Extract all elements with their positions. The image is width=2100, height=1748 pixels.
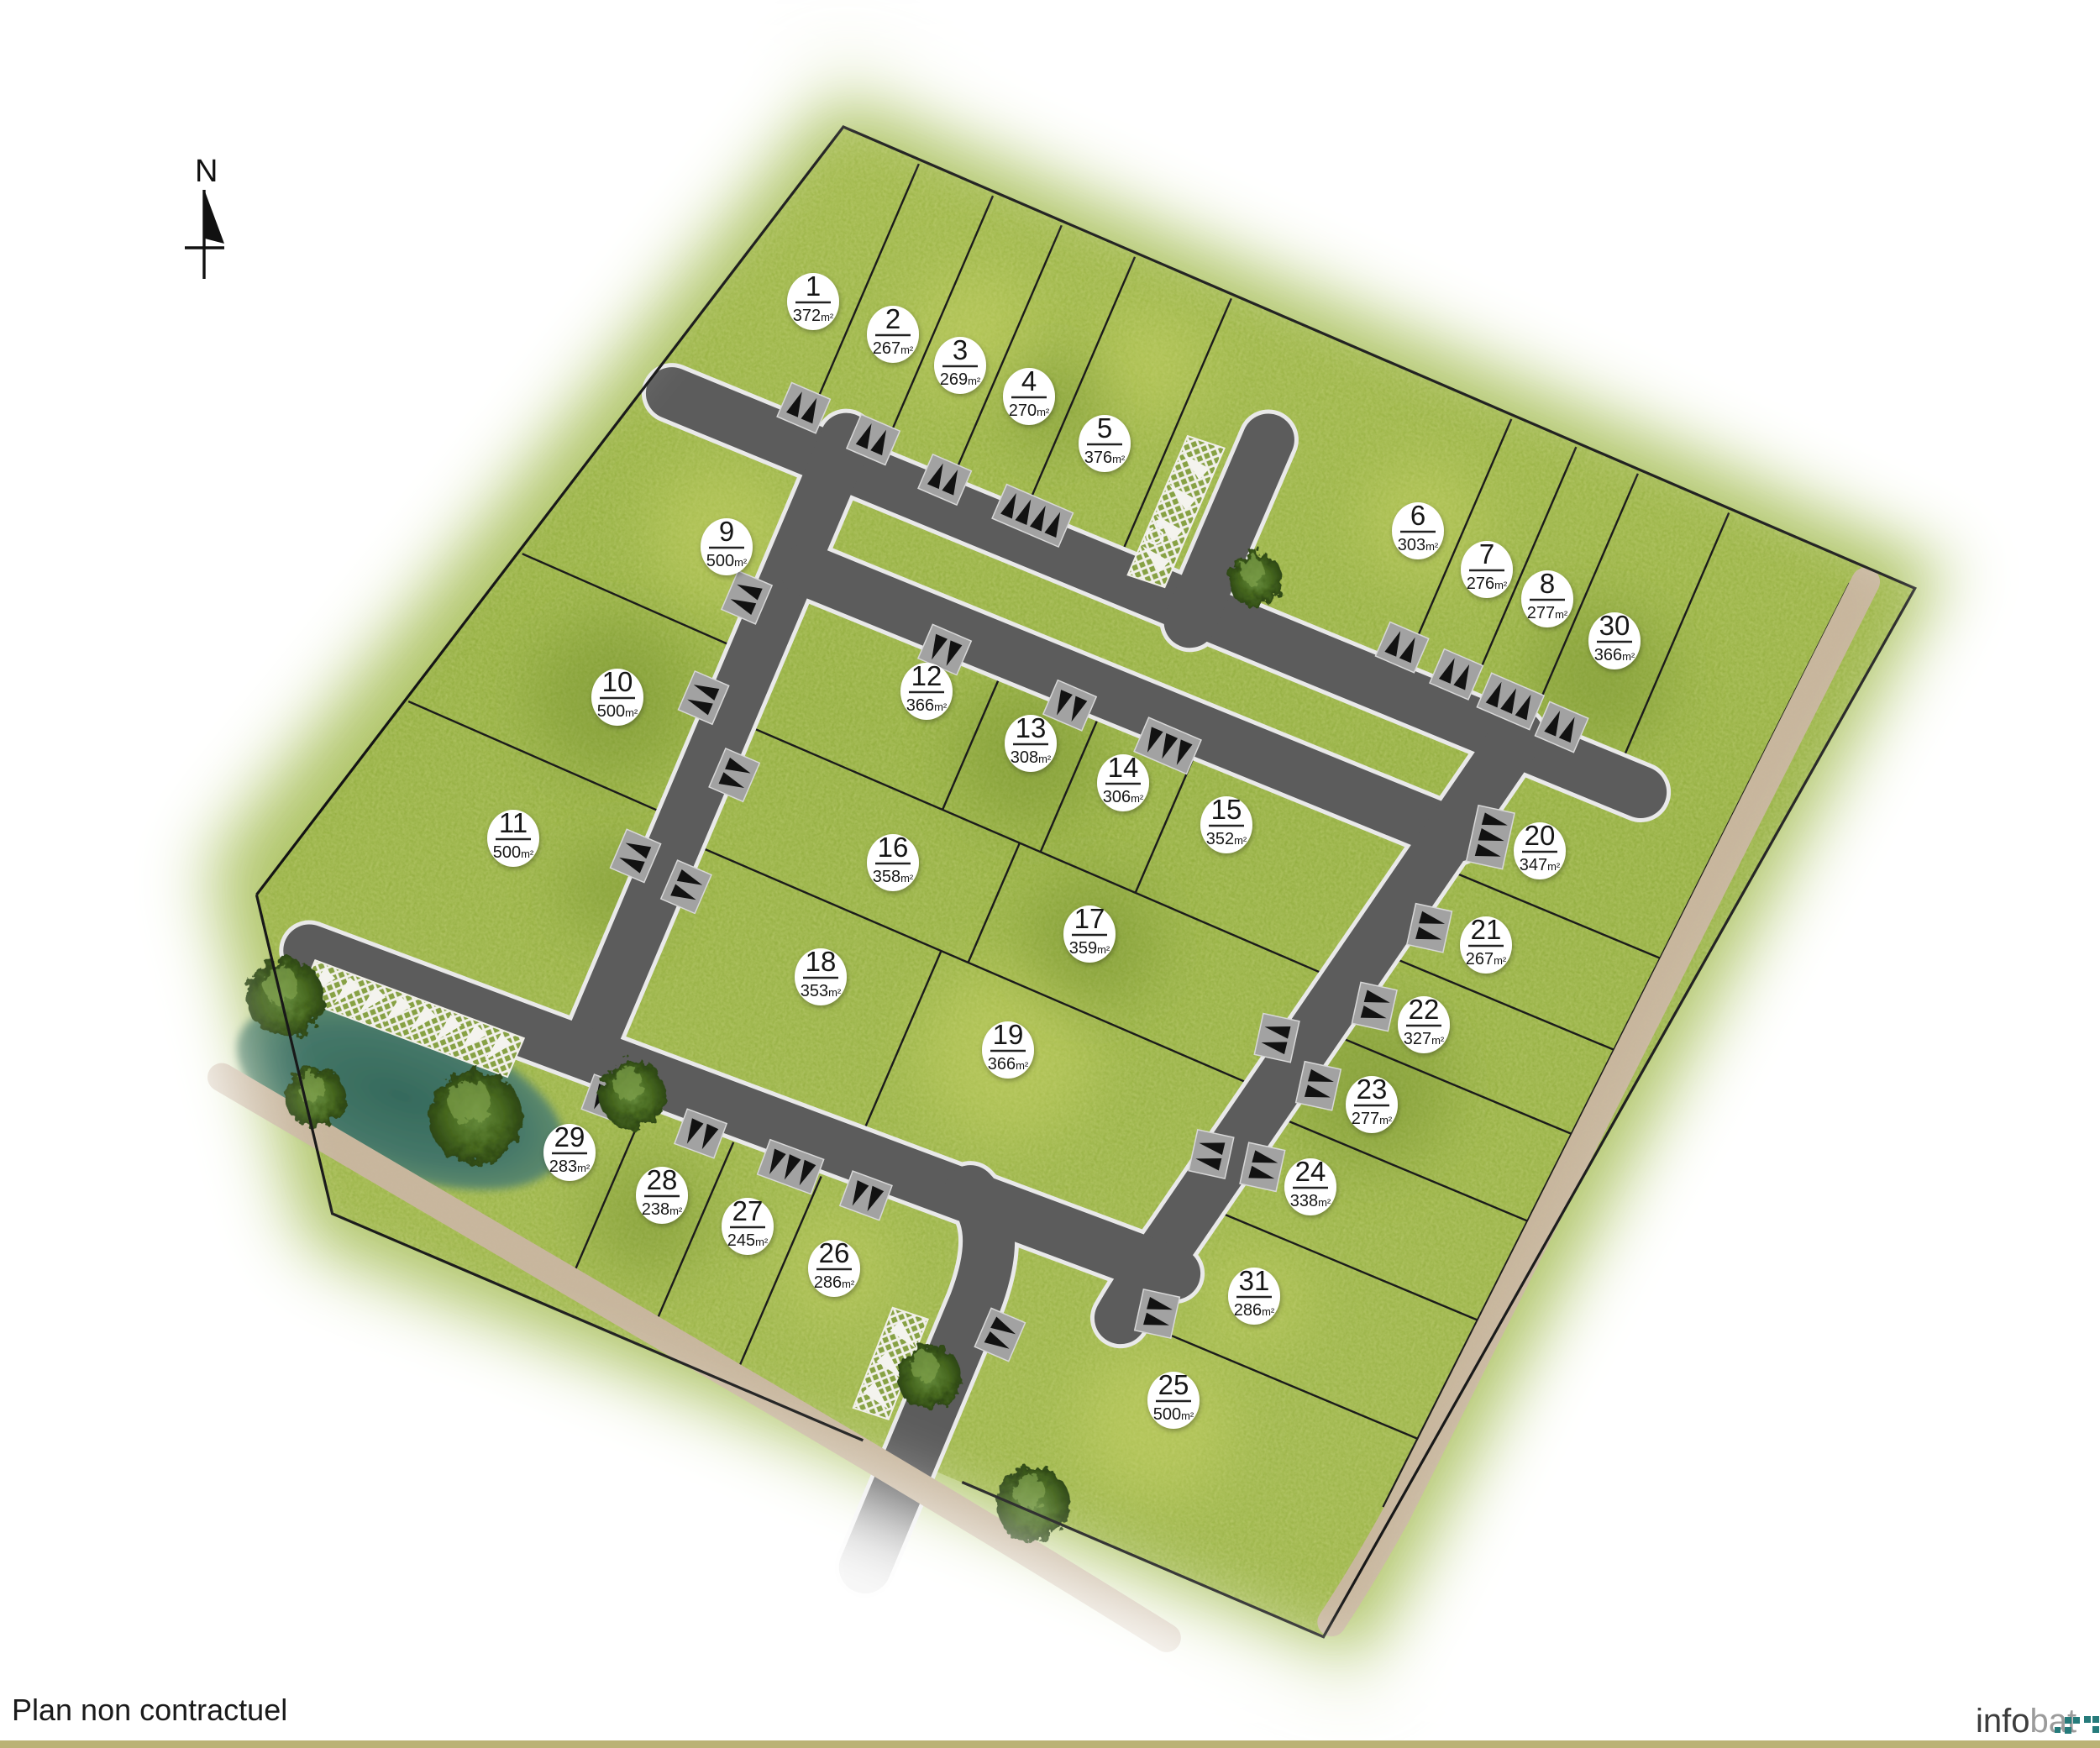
disclaimer-text: Plan non contractuel [12,1693,287,1727]
driveway-pad [1407,904,1452,953]
lot-number: 29 [554,1121,585,1152]
driveway-pad [1240,1142,1285,1191]
lot-number: 3 [953,334,968,365]
lot-number: 2 [885,303,900,334]
lot-number: 26 [819,1237,850,1268]
lot-number: 10 [602,666,633,697]
brand-square [2092,1716,2099,1723]
lot-number: 23 [1357,1073,1388,1105]
lot-number: 14 [1108,752,1139,783]
lot-number: 18 [806,946,837,977]
driveway-pad [1135,1289,1180,1338]
lot-number: 11 [499,807,528,838]
lot-number: 5 [1097,412,1112,444]
brand-logo: infobat [1976,1703,2076,1740]
pad-surface [1296,1062,1341,1110]
compass-label: N [195,154,218,189]
lot-number: 6 [1410,500,1425,531]
lot-number: 9 [719,516,734,547]
lot-number: 25 [1158,1369,1189,1400]
footer-bar [0,1740,2100,1748]
lot-number: 13 [1016,712,1047,743]
lot-number: 15 [1211,794,1242,825]
pad-surface [1407,904,1452,953]
brand-part1: info [1976,1703,2030,1740]
lot-number: 16 [878,832,909,863]
brand-square [2055,1727,2061,1733]
lot-number: 30 [1599,610,1630,641]
driveway-pad [1352,982,1397,1031]
lot-number: 4 [1021,365,1037,396]
plan-canvas: 1372m²2267m²3269m²4270m²5376m²6303m²7276… [0,0,2100,1748]
lot-number: 8 [1540,568,1555,599]
brand-square [2084,1716,2091,1723]
lot-number: 20 [1525,820,1556,851]
pad-surface [1240,1142,1285,1191]
brand-square [2065,1717,2071,1724]
pad-surface [1135,1289,1180,1338]
pad-surface [1189,1130,1234,1178]
site-plan-svg: 1372m²2267m²3269m²4270m²5376m²6303m²7276… [0,0,2100,1748]
lot-number: 24 [1295,1156,1326,1187]
brand-square [2065,1727,2071,1734]
lot-number: 19 [993,1019,1024,1050]
lot-number: 27 [732,1195,764,1226]
lot-number: 7 [1479,538,1494,570]
lot-number: 28 [647,1164,678,1195]
lot-number: 22 [1409,994,1440,1025]
lot-number: 17 [1074,903,1105,934]
driveway-pad [1189,1130,1234,1178]
lot-number: 12 [911,660,942,691]
driveway-pad [1254,1013,1299,1062]
brand-square [2092,1726,2099,1733]
pad-surface [1352,982,1397,1031]
lot-number: 31 [1239,1265,1270,1296]
brand-square [2073,1717,2080,1724]
lot-number: 21 [1471,914,1502,945]
lot-number: 1 [806,270,821,302]
pad-surface [1254,1013,1299,1062]
driveway-pad [1296,1062,1341,1110]
